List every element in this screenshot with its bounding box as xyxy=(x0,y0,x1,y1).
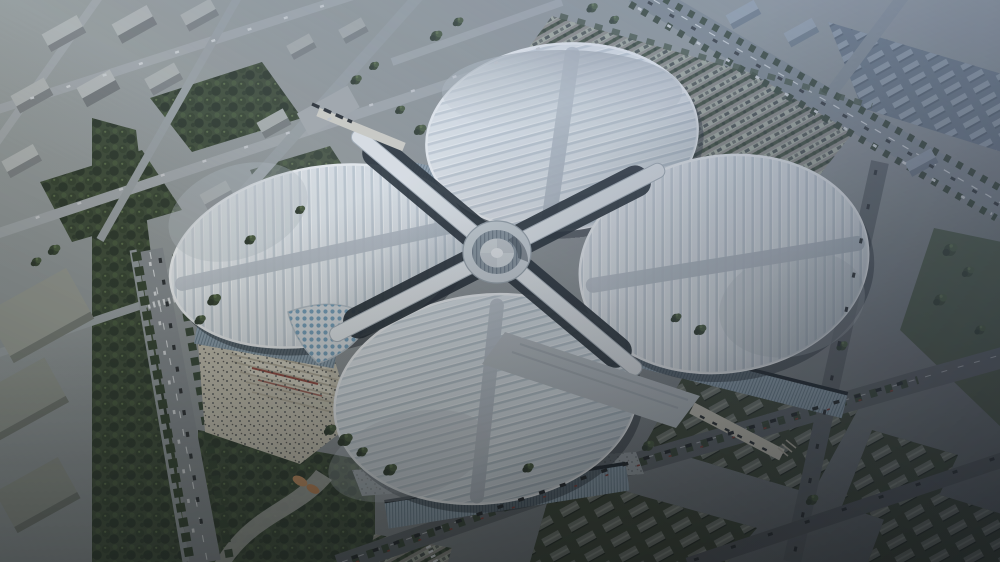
aerial-rendering xyxy=(0,0,1000,562)
cool-tint-overlay xyxy=(0,0,1000,562)
scene-canvas xyxy=(0,0,1000,562)
